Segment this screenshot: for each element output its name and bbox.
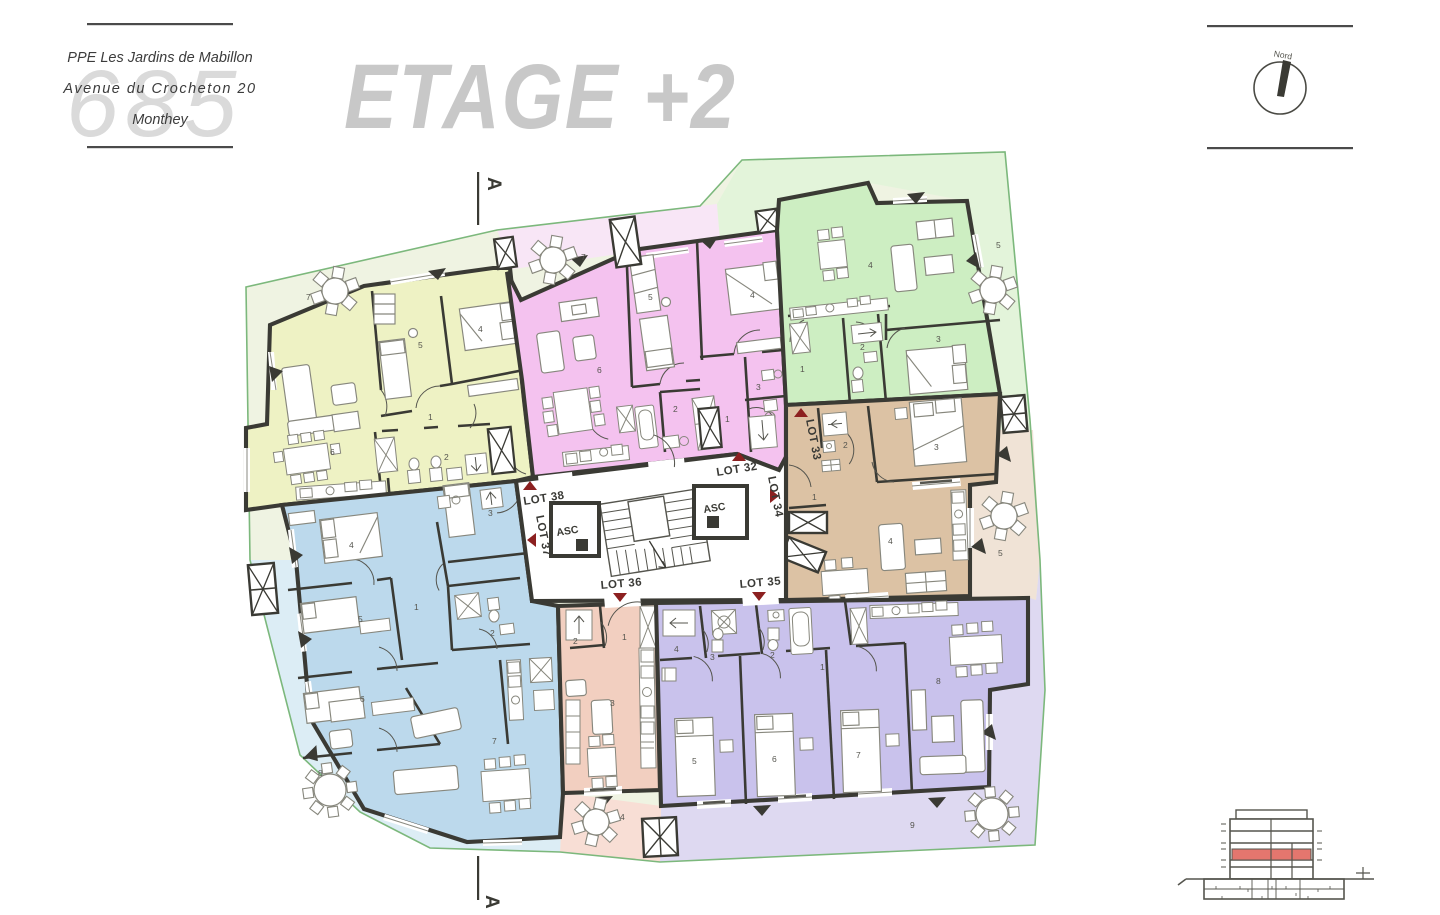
svg-text:7: 7 bbox=[856, 750, 861, 760]
svg-text:6: 6 bbox=[597, 365, 602, 375]
svg-text:6: 6 bbox=[330, 447, 335, 457]
svg-text:3: 3 bbox=[756, 382, 761, 392]
svg-text:5: 5 bbox=[996, 240, 1001, 250]
svg-text:2: 2 bbox=[444, 452, 449, 462]
svg-text:5: 5 bbox=[998, 548, 1003, 558]
svg-text:Nord: Nord bbox=[1273, 48, 1293, 61]
svg-text:1: 1 bbox=[428, 412, 433, 422]
svg-text:2: 2 bbox=[770, 650, 775, 660]
svg-text:A: A bbox=[483, 177, 504, 191]
svg-text:Avenue du Crocheton 20: Avenue du Crocheton 20 bbox=[62, 81, 256, 97]
svg-text:685: 685 bbox=[66, 51, 243, 157]
svg-text:4: 4 bbox=[888, 536, 893, 546]
svg-text:6: 6 bbox=[772, 754, 777, 764]
svg-text:7: 7 bbox=[306, 292, 311, 302]
svg-text:4: 4 bbox=[478, 324, 483, 334]
svg-text:3: 3 bbox=[710, 652, 715, 662]
svg-text:3: 3 bbox=[488, 508, 493, 518]
svg-text:9: 9 bbox=[910, 820, 915, 830]
svg-text:A: A bbox=[481, 895, 502, 909]
svg-text:1: 1 bbox=[800, 364, 805, 374]
svg-text:5: 5 bbox=[692, 756, 697, 766]
svg-text:3: 3 bbox=[610, 698, 615, 708]
svg-text:PPE Les Jardins de Mabillon: PPE Les Jardins de Mabillon bbox=[67, 50, 252, 66]
svg-text:ETAGE +2: ETAGE +2 bbox=[344, 45, 737, 148]
svg-text:1: 1 bbox=[812, 492, 817, 502]
svg-text:5: 5 bbox=[648, 292, 653, 302]
svg-text:1: 1 bbox=[622, 632, 627, 642]
svg-text:2: 2 bbox=[490, 628, 495, 638]
svg-text:4: 4 bbox=[674, 644, 679, 654]
svg-text:1: 1 bbox=[414, 602, 419, 612]
svg-text:5: 5 bbox=[418, 340, 423, 350]
svg-text:2: 2 bbox=[843, 440, 848, 450]
svg-text:2: 2 bbox=[860, 342, 865, 352]
svg-text:7: 7 bbox=[492, 736, 497, 746]
svg-text:3: 3 bbox=[934, 442, 939, 452]
svg-text:6: 6 bbox=[360, 694, 365, 704]
svg-text:5: 5 bbox=[358, 614, 363, 624]
svg-text:4: 4 bbox=[868, 260, 873, 270]
svg-text:1: 1 bbox=[820, 662, 825, 672]
svg-text:4: 4 bbox=[750, 290, 755, 300]
svg-text:1: 1 bbox=[725, 414, 730, 424]
svg-text:2: 2 bbox=[573, 636, 578, 646]
svg-text:4: 4 bbox=[349, 540, 354, 550]
svg-text:7: 7 bbox=[581, 252, 586, 262]
svg-text:2: 2 bbox=[673, 404, 678, 414]
svg-text:8: 8 bbox=[936, 676, 941, 686]
svg-text:3: 3 bbox=[936, 334, 941, 344]
svg-text:Monthey: Monthey bbox=[132, 112, 188, 128]
